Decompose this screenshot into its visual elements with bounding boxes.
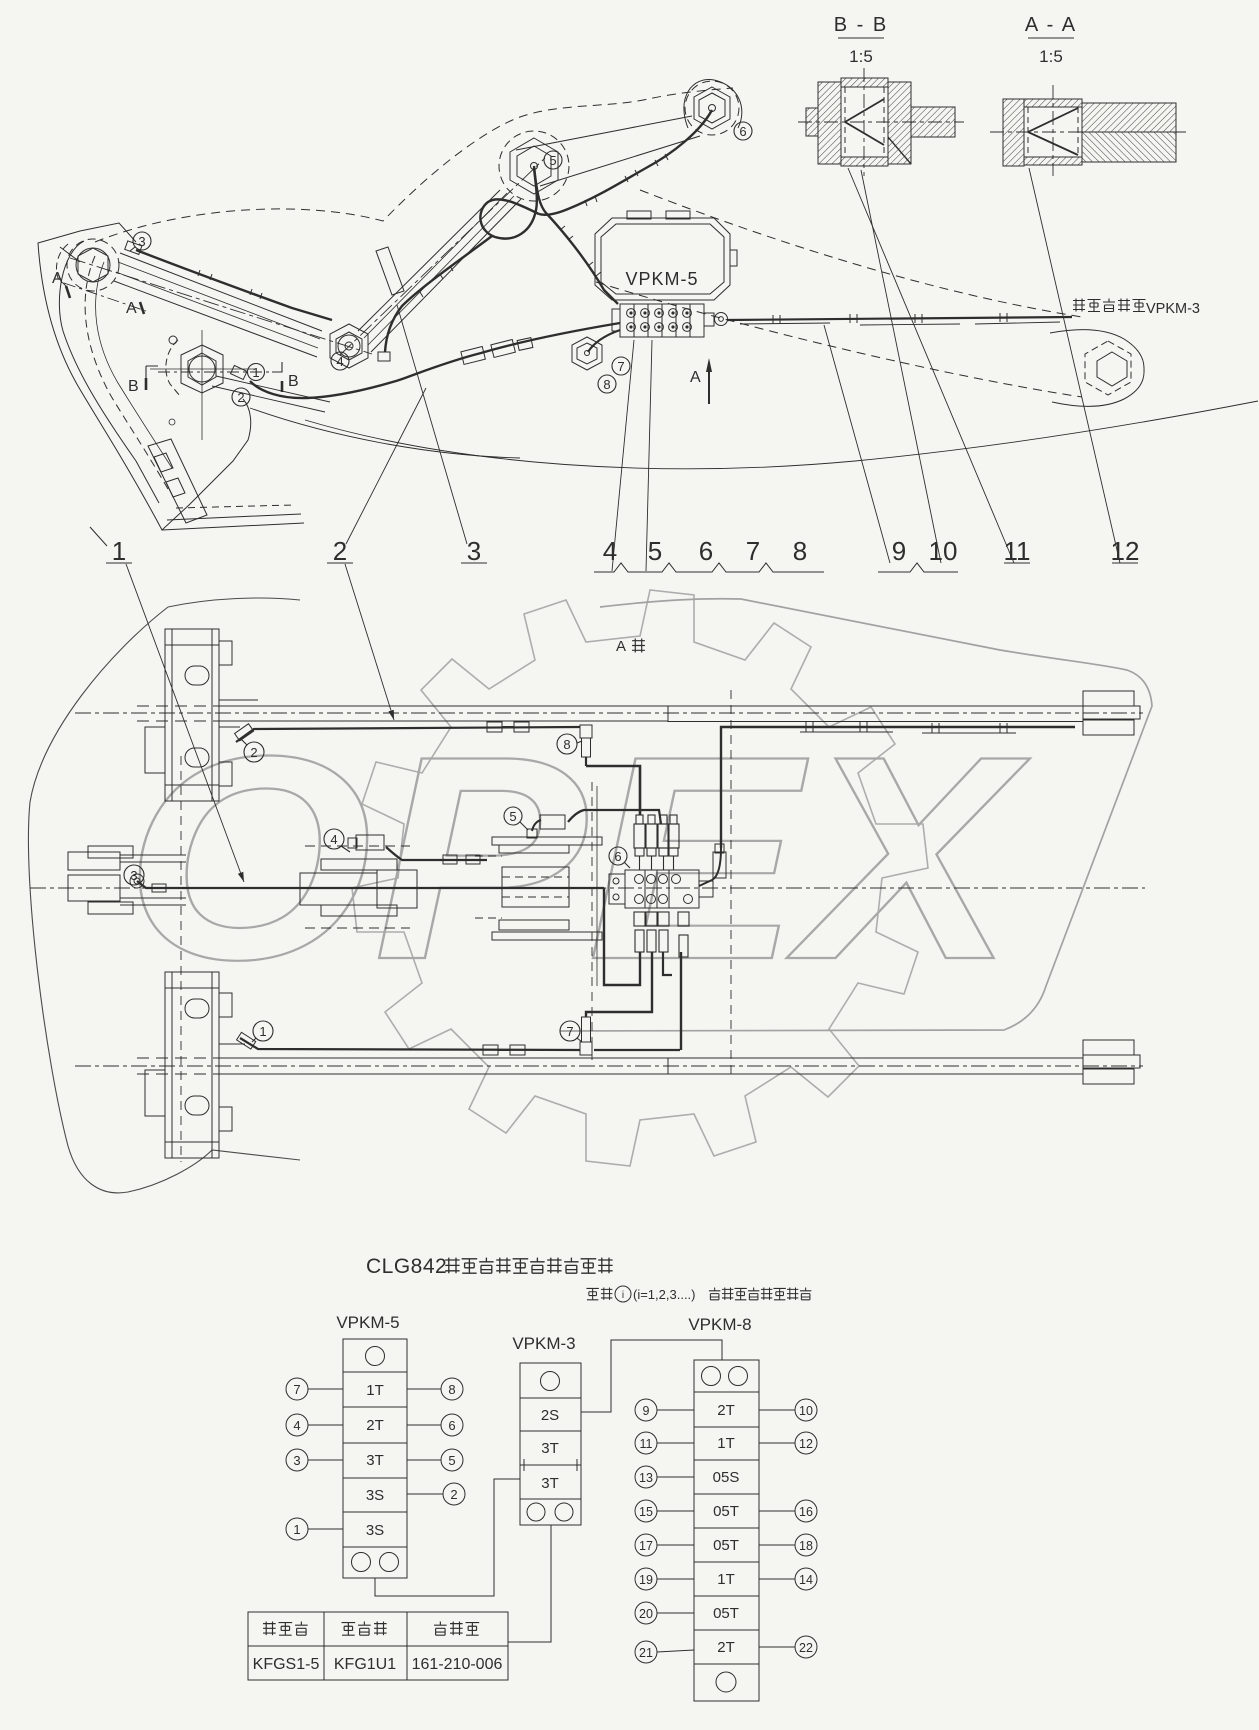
svg-text:A: A — [616, 638, 626, 655]
svg-text:VPKM-3: VPKM-3 — [1146, 301, 1200, 317]
svg-text:3T: 3T — [366, 1452, 384, 1469]
svg-text:4: 4 — [330, 832, 337, 847]
svg-text:B: B — [128, 378, 139, 395]
svg-text:5: 5 — [509, 809, 516, 824]
svg-text:19: 19 — [639, 1573, 653, 1587]
svg-text:8: 8 — [563, 737, 570, 752]
svg-text:CLG842: CLG842 — [366, 1255, 447, 1278]
svg-text:3: 3 — [138, 234, 145, 249]
svg-text:20: 20 — [639, 1607, 653, 1621]
svg-text:7: 7 — [746, 536, 760, 566]
svg-text:2: 2 — [237, 390, 244, 405]
svg-text:8: 8 — [448, 1382, 455, 1397]
svg-text:2: 2 — [333, 536, 347, 566]
svg-text:1:5: 1:5 — [849, 47, 873, 66]
svg-text:1: 1 — [112, 536, 126, 566]
svg-text:3: 3 — [130, 868, 137, 883]
svg-text:6: 6 — [699, 536, 713, 566]
svg-text:VPKM-3: VPKM-3 — [512, 1334, 575, 1353]
svg-text:KFGS1-5: KFGS1-5 — [253, 1656, 320, 1673]
svg-text:VPKM-5: VPKM-5 — [625, 269, 698, 289]
svg-text:161-210-006: 161-210-006 — [412, 1656, 503, 1673]
svg-text:2: 2 — [250, 745, 257, 760]
svg-text:18: 18 — [799, 1539, 813, 1553]
svg-text:8: 8 — [793, 536, 807, 566]
svg-text:5: 5 — [448, 1453, 455, 1468]
svg-text:05S: 05S — [713, 1469, 740, 1486]
svg-text:1T: 1T — [717, 1435, 735, 1452]
svg-text:3: 3 — [467, 536, 481, 566]
svg-text:1: 1 — [293, 1522, 300, 1537]
svg-text:7: 7 — [617, 359, 624, 374]
svg-text:1T: 1T — [717, 1571, 735, 1588]
svg-text:21: 21 — [639, 1646, 653, 1660]
svg-text:3: 3 — [293, 1453, 300, 1468]
svg-text:6: 6 — [739, 124, 746, 139]
svg-text:B - B: B - B — [834, 14, 888, 36]
svg-text:4: 4 — [336, 354, 343, 369]
svg-text:2: 2 — [450, 1487, 457, 1502]
svg-text:2T: 2T — [717, 1402, 735, 1419]
svg-text:8: 8 — [603, 377, 610, 392]
svg-text:10: 10 — [929, 536, 958, 566]
svg-text:2T: 2T — [366, 1417, 384, 1434]
svg-text:5: 5 — [648, 536, 662, 566]
svg-text:A: A — [126, 300, 137, 317]
svg-text:1:5: 1:5 — [1039, 47, 1063, 66]
svg-text:5: 5 — [549, 153, 556, 168]
svg-text:10: 10 — [799, 1404, 813, 1418]
svg-text:14: 14 — [799, 1573, 813, 1587]
svg-text:3S: 3S — [366, 1522, 384, 1539]
svg-text:A: A — [690, 369, 701, 386]
svg-text:2T: 2T — [717, 1639, 735, 1656]
svg-text:17: 17 — [639, 1539, 653, 1553]
svg-text:05T: 05T — [713, 1537, 739, 1554]
svg-text:9: 9 — [643, 1404, 650, 1418]
svg-text:A - A: A - A — [1025, 14, 1077, 36]
svg-text:VPKM-5: VPKM-5 — [336, 1313, 399, 1332]
svg-text:11: 11 — [1004, 536, 1031, 566]
svg-text:7: 7 — [566, 1024, 573, 1039]
svg-text:1: 1 — [252, 365, 259, 380]
svg-text:15: 15 — [639, 1505, 653, 1519]
svg-text:1T: 1T — [366, 1382, 384, 1399]
svg-text:VPKM-8: VPKM-8 — [688, 1315, 751, 1334]
svg-text:1: 1 — [259, 1024, 266, 1039]
svg-text:3T: 3T — [541, 1475, 559, 1492]
svg-text:16: 16 — [799, 1505, 813, 1519]
svg-text:3S: 3S — [366, 1487, 384, 1504]
svg-text:3T: 3T — [541, 1440, 559, 1457]
svg-text:12: 12 — [799, 1437, 813, 1451]
svg-text:11: 11 — [640, 1437, 653, 1451]
svg-text:22: 22 — [799, 1641, 813, 1655]
svg-text:(i=1,2,3....): (i=1,2,3....) — [633, 1287, 696, 1302]
svg-text:7: 7 — [293, 1382, 300, 1397]
svg-text:A: A — [52, 270, 63, 287]
svg-text:05T: 05T — [713, 1503, 739, 1520]
svg-text:i: i — [622, 1290, 624, 1301]
svg-text:B: B — [288, 373, 299, 390]
svg-text:KFG1U1: KFG1U1 — [334, 1656, 396, 1673]
svg-text:2S: 2S — [541, 1407, 559, 1424]
svg-text:05T: 05T — [713, 1605, 739, 1622]
svg-text:4: 4 — [293, 1418, 300, 1433]
svg-text:6: 6 — [614, 849, 621, 864]
svg-text:6: 6 — [448, 1418, 455, 1433]
svg-text:13: 13 — [639, 1471, 653, 1485]
svg-text:9: 9 — [892, 536, 906, 566]
